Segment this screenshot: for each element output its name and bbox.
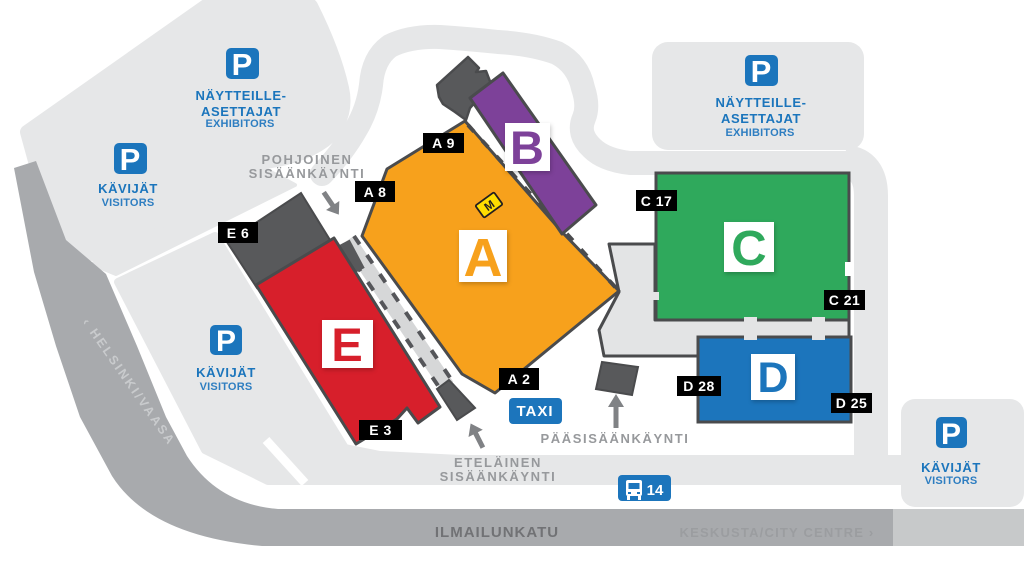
svg-text:KESKUSTA/CITY CENTRE ›: KESKUSTA/CITY CENTRE ›: [680, 525, 875, 540]
svg-text:B: B: [510, 121, 544, 174]
svg-text:A 9: A 9: [432, 135, 455, 151]
svg-text:14: 14: [647, 482, 664, 499]
svg-text:C 21: C 21: [829, 292, 861, 308]
svg-text:P: P: [751, 54, 772, 89]
svg-text:C 17: C 17: [641, 193, 673, 209]
svg-text:E 6: E 6: [227, 225, 250, 241]
svg-text:ETELÄINEN: ETELÄINEN: [454, 455, 542, 470]
svg-text:VISITORS: VISITORS: [200, 381, 253, 393]
svg-text:D 28: D 28: [683, 378, 715, 394]
svg-text:P: P: [120, 142, 141, 177]
svg-text:KÄVIJÄT: KÄVIJÄT: [98, 181, 158, 196]
svg-text:EXHIBITORS: EXHIBITORS: [725, 127, 794, 139]
svg-text:ASETTAJAT: ASETTAJAT: [721, 111, 801, 126]
svg-text:A 2: A 2: [508, 371, 531, 387]
svg-text:KÄVIJÄT: KÄVIJÄT: [196, 365, 256, 380]
svg-text:A: A: [464, 228, 503, 288]
svg-text:P: P: [232, 47, 253, 82]
svg-text:A 8: A 8: [364, 184, 387, 200]
svg-text:NÄYTTEILLE-: NÄYTTEILLE-: [715, 95, 806, 110]
svg-text:SISÄÄNKÄYNTI: SISÄÄNKÄYNTI: [440, 469, 557, 484]
svg-text:E 3: E 3: [369, 422, 392, 438]
svg-text:NÄYTTEILLE-: NÄYTTEILLE-: [195, 88, 286, 103]
svg-text:VISITORS: VISITORS: [102, 197, 155, 209]
svg-text:POHJOINEN: POHJOINEN: [262, 152, 353, 167]
svg-text:D: D: [757, 354, 788, 402]
svg-text:VISITORS: VISITORS: [925, 475, 978, 487]
svg-text:ASETTAJAT: ASETTAJAT: [201, 104, 281, 119]
svg-text:PÄÄSISÄÄNKÄYNTI: PÄÄSISÄÄNKÄYNTI: [541, 431, 690, 446]
svg-text:D 25: D 25: [836, 395, 868, 411]
svg-text:EXHIBITORS: EXHIBITORS: [205, 118, 274, 130]
svg-text:TAXI: TAXI: [516, 403, 553, 420]
svg-text:SISÄÄNKÄYNTI: SISÄÄNKÄYNTI: [249, 166, 366, 181]
svg-text:ILMAILUNKATU: ILMAILUNKATU: [435, 524, 559, 541]
svg-text:P: P: [216, 325, 236, 358]
svg-text:E: E: [331, 318, 362, 371]
svg-text:KÄVIJÄT: KÄVIJÄT: [921, 460, 981, 475]
svg-text:C: C: [731, 222, 766, 276]
svg-text:P: P: [941, 418, 961, 451]
